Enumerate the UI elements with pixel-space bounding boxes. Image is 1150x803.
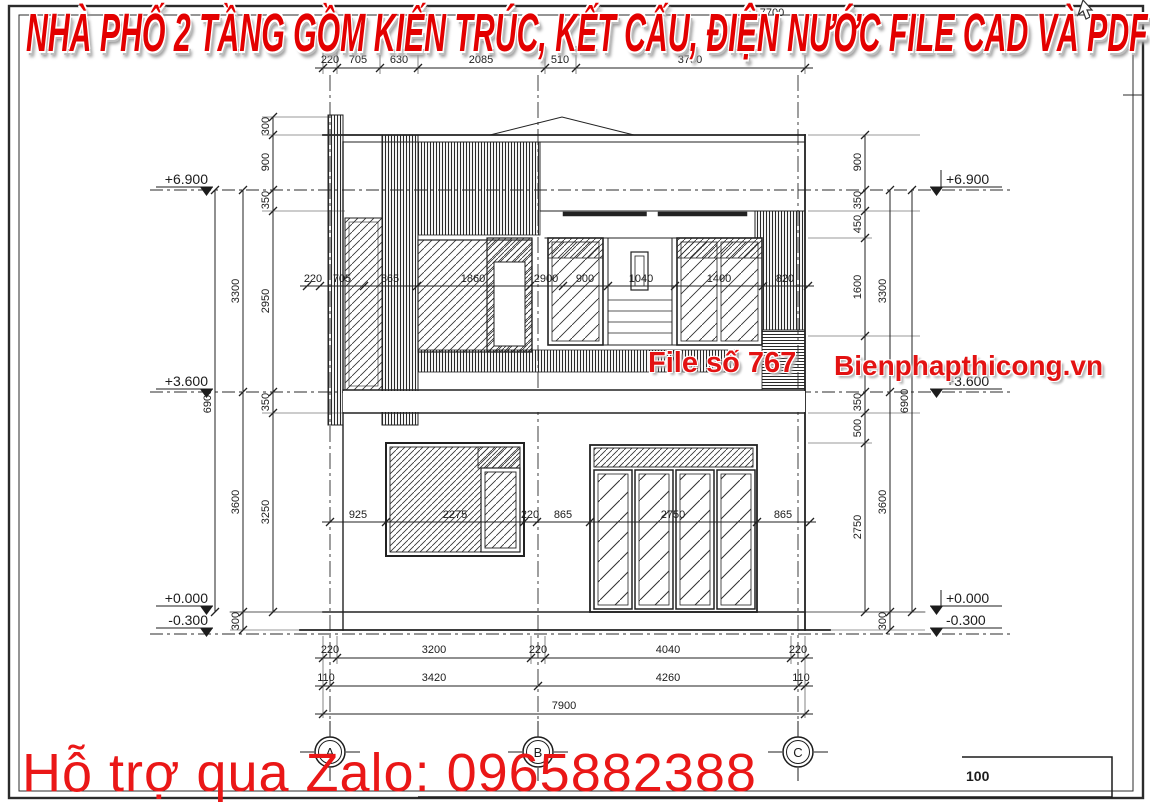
dim-label: 3300	[877, 279, 889, 303]
dim-labels-right: 900 350 450 1600 350 500 2750 3300 3600 …	[852, 153, 911, 630]
dim-labels-left: 300 900 350 2950 350 3250 3300 3600 300 …	[202, 117, 272, 630]
dim-label: 4260	[656, 672, 680, 684]
ground-lines	[230, 612, 925, 630]
dim-label: 220	[304, 273, 322, 285]
watermark-zalo-contact: Hỗ trợ qua Zalo: 0965882388	[22, 742, 757, 803]
dim-label: 220	[321, 644, 339, 656]
dim-label: 820	[776, 273, 794, 285]
level-marker-triangle	[200, 628, 213, 637]
dim-label: 2750	[852, 515, 864, 539]
door-main	[590, 445, 757, 612]
dim-label: 2275	[443, 509, 467, 521]
building-elevation	[230, 115, 925, 630]
louver-band-top	[418, 142, 540, 235]
floor-slab	[343, 390, 805, 413]
dim-label: 350	[852, 393, 864, 411]
window-1f	[386, 443, 524, 556]
level-marker-triangle	[200, 187, 213, 196]
dim-label: 110	[317, 672, 335, 684]
dim-label: 900	[260, 153, 272, 171]
dim-label: 450	[852, 215, 864, 233]
dim-label: 220	[529, 644, 547, 656]
dim-label: 900	[576, 273, 594, 285]
cad-drawing-sheet: 7700	[0, 0, 1150, 803]
level-marker-triangle	[930, 606, 943, 615]
dim-label: 2750	[661, 509, 685, 521]
roof-ridge	[490, 117, 634, 135]
wall-niche-center	[608, 238, 672, 345]
elevation-drawing: 7700	[0, 0, 1150, 803]
level-label: -0.300	[946, 612, 986, 628]
dim-label: 3250	[260, 500, 272, 524]
dim-label: 925	[349, 509, 367, 521]
dim-label: 1600	[852, 275, 864, 299]
dim-label: 1400	[707, 273, 731, 285]
dim-label: 300	[260, 117, 272, 135]
dim-label: 7900	[552, 700, 576, 712]
dim-label: 900	[852, 153, 864, 171]
dim-label: 865	[774, 509, 792, 521]
dim-label: 110	[792, 672, 810, 684]
dim-label: 3300	[230, 279, 242, 303]
dim-label: 2900	[534, 273, 558, 285]
level-marker-triangle	[930, 628, 943, 637]
dim-label: 1040	[629, 273, 653, 285]
level-label: +3.600	[165, 373, 208, 389]
door-transom	[594, 448, 753, 467]
dim-label: 2950	[260, 289, 272, 313]
level-label: +0.000	[165, 590, 208, 606]
dim-label: 3600	[877, 490, 889, 514]
watermark-file-number: File số 767	[648, 347, 796, 380]
louver-column-left	[328, 115, 343, 425]
window-2f-left	[548, 238, 603, 345]
dim-label: 350	[852, 191, 864, 209]
level-label: +0.000	[946, 590, 989, 606]
level-marker-triangle	[930, 187, 943, 196]
dim-label: 350	[260, 191, 272, 209]
grid-bubble-label: C	[793, 745, 802, 760]
dim-label: 1860	[461, 273, 485, 285]
grid-bubble-c: C	[768, 721, 828, 781]
level-marker-triangle	[930, 389, 943, 398]
dim-label: 3420	[422, 672, 446, 684]
level-label: +6.900	[165, 171, 208, 187]
dim-label: 350	[260, 393, 272, 411]
dim-label: 6900	[899, 389, 911, 413]
dim-label: 4040	[656, 644, 680, 656]
level-markers-right: +6.900 +3.600 +0.000 -0.300	[930, 170, 1002, 637]
dim-label: 3200	[422, 644, 446, 656]
dim-label: 220	[521, 509, 539, 521]
dim-label: 220	[789, 644, 807, 656]
dim-label: 865	[554, 509, 572, 521]
window-2f-right	[677, 238, 762, 345]
watermark-website: Bienphapthicong.vn	[834, 350, 1103, 382]
window-2f-large	[418, 238, 532, 352]
hatched-panel-left	[345, 218, 382, 390]
level-label: -0.300	[168, 612, 208, 628]
dim-label: 865	[381, 273, 399, 285]
level-label: +6.900	[946, 171, 989, 187]
scale-label: 100	[966, 768, 990, 784]
dim-label: 705	[333, 273, 351, 285]
dim-label: 3600	[230, 490, 242, 514]
title-banner: NHÀ PHỐ 2 TẦNG GỒM KIẾN TRÚC, KẾT CẤU, Đ…	[26, 2, 1148, 64]
dim-label: 500	[852, 419, 864, 437]
dim-label: 300	[877, 612, 889, 630]
dim-label: 300	[230, 612, 242, 630]
dim-labels-bottom: 220 3200 220 4040 220 110 3420 4260 110 …	[317, 644, 810, 712]
